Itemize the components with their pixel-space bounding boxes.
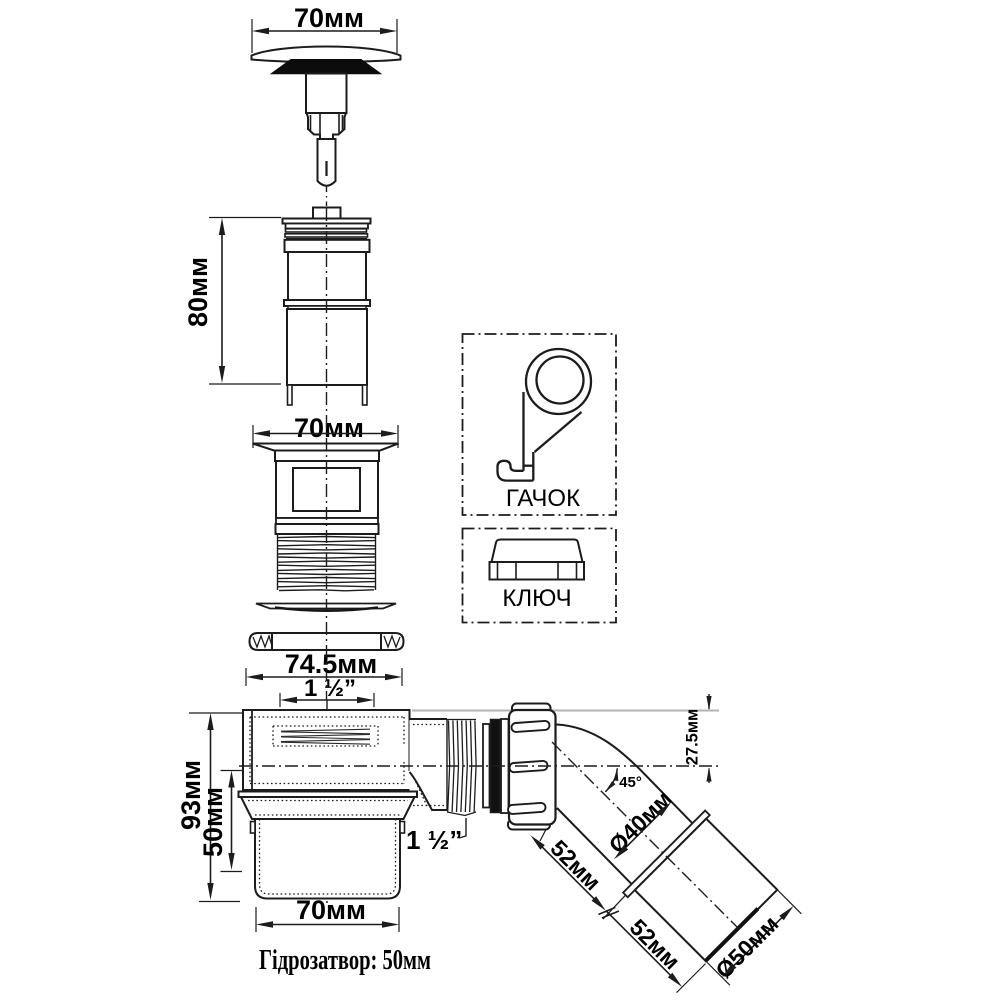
svg-text:Гідрозатвор: 50мм: Гідрозатвор: 50мм (259, 944, 431, 976)
svg-text:ГАЧОК: ГАЧОК (506, 485, 580, 512)
svg-text:80мм: 80мм (183, 257, 213, 327)
svg-text:70мм: 70мм (294, 413, 364, 443)
svg-text:45°: 45° (619, 774, 642, 791)
svg-text:1 ½”: 1 ½” (406, 825, 462, 855)
svg-text:70мм: 70мм (294, 3, 364, 33)
svg-text:50мм: 50мм (198, 787, 228, 857)
svg-text:КЛЮЧ: КЛЮЧ (502, 585, 571, 612)
svg-text:27.5мм: 27.5мм (684, 709, 702, 766)
svg-text:1 ½”: 1 ½” (304, 675, 356, 702)
svg-text:70мм: 70мм (296, 895, 366, 925)
